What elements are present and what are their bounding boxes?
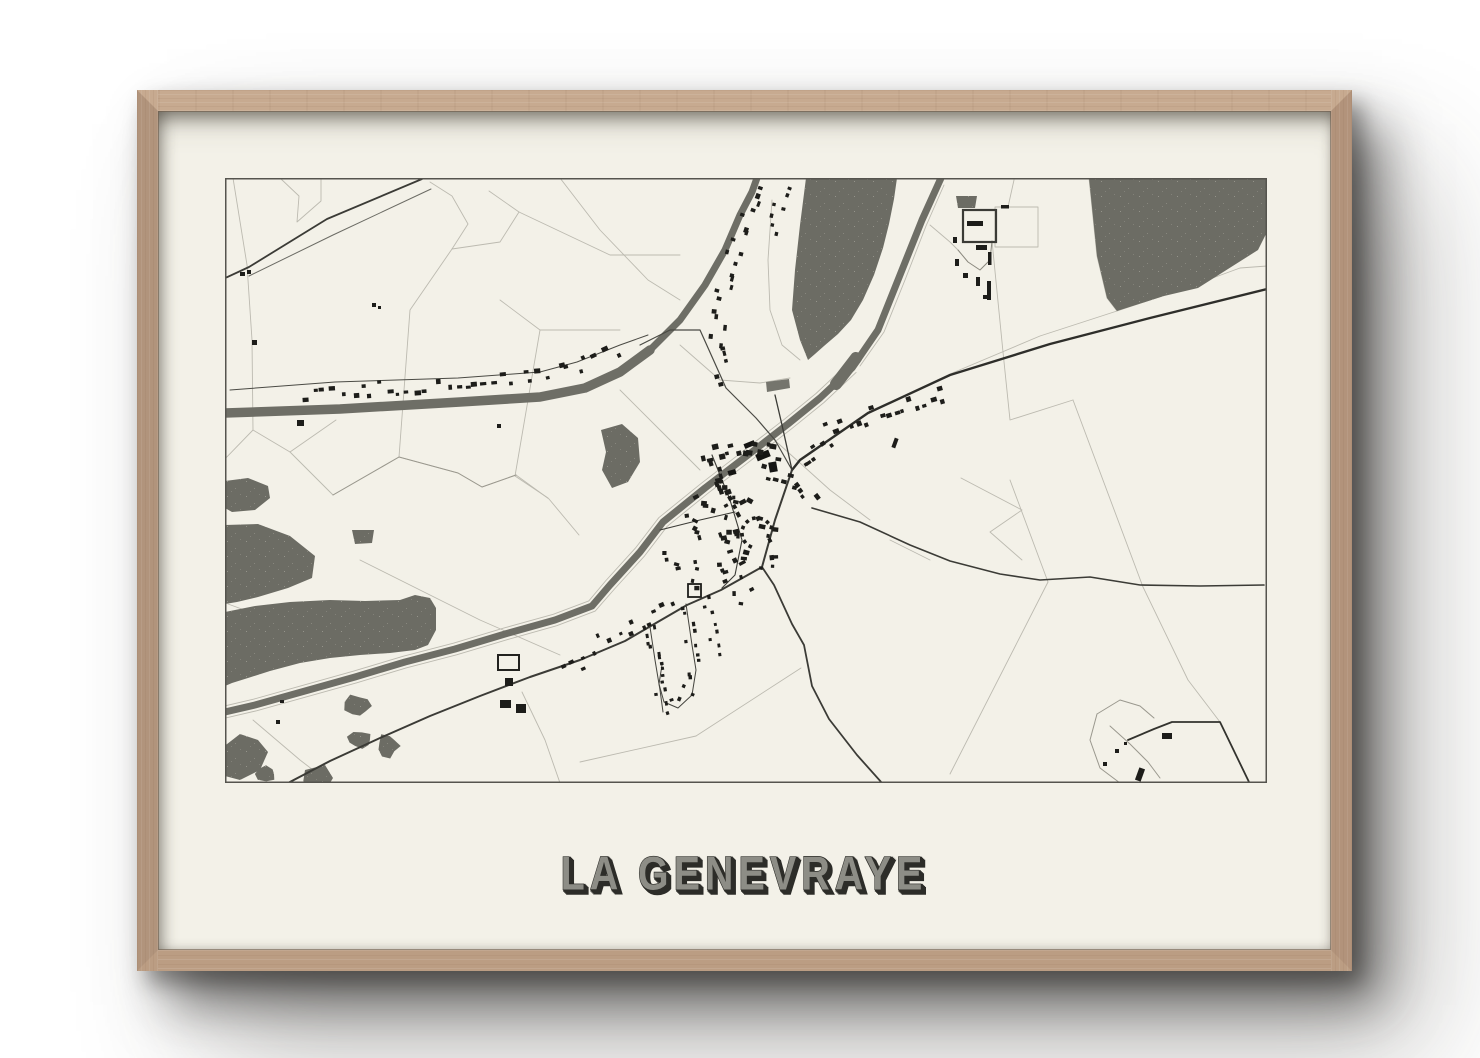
svg-text:LA GENEVRAYE: LA GENEVRAYE [561,848,928,900]
